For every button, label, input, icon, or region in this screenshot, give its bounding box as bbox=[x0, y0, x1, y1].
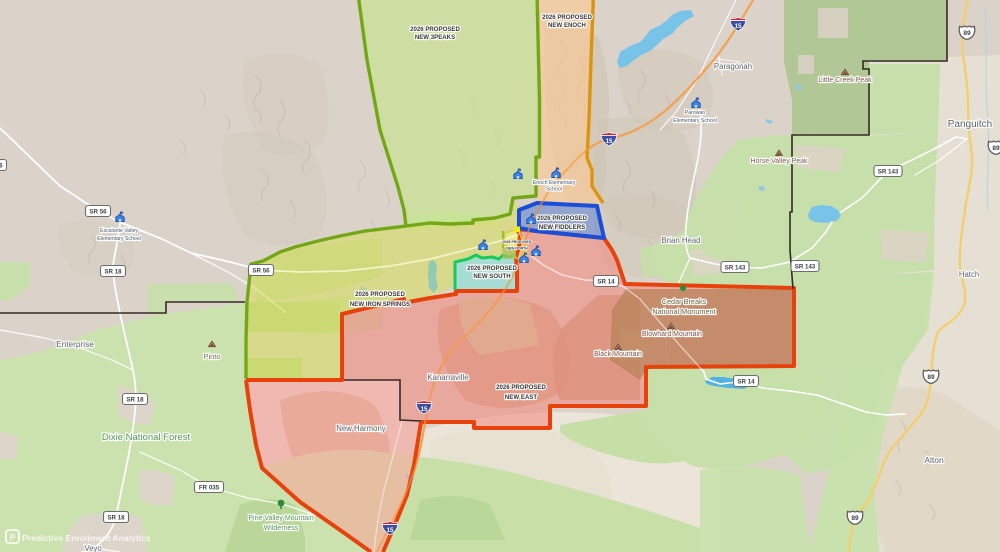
svg-text:Parowan: Parowan bbox=[685, 110, 706, 116]
svg-text:SR 56: SR 56 bbox=[89, 209, 107, 216]
svg-text:NEW FIDDLERS: NEW FIDDLERS bbox=[539, 224, 585, 231]
svg-text:Kanarraville: Kanarraville bbox=[427, 373, 468, 382]
svg-text:Alton: Alton bbox=[924, 455, 944, 465]
svg-text:Elementary School: Elementary School bbox=[97, 236, 141, 242]
svg-text:Dixie National Forest: Dixie National Forest bbox=[102, 432, 191, 443]
svg-text:NEW EAST: NEW EAST bbox=[505, 394, 537, 401]
svg-text:Veyo: Veyo bbox=[84, 544, 102, 552]
svg-text:Horse Valley Peak: Horse Valley Peak bbox=[750, 158, 808, 165]
svg-text:National Monument: National Monument bbox=[652, 307, 715, 316]
svg-text:Blowhard Mountain: Blowhard Mountain bbox=[642, 331, 702, 338]
svg-text:SR 143: SR 143 bbox=[725, 265, 746, 272]
svg-text:Escalante Valley: Escalante Valley bbox=[100, 228, 138, 234]
svg-text:NEW NORTH: NEW NORTH bbox=[506, 247, 528, 251]
svg-text:SR 14: SR 14 bbox=[737, 379, 755, 386]
svg-text:New Harmony: New Harmony bbox=[336, 424, 385, 433]
svg-text:2026 PROPOSED: 2026 PROPOSED bbox=[467, 265, 517, 272]
svg-text:Pinto: Pinto bbox=[203, 352, 220, 361]
svg-text:2026 PROPOSED: 2026 PROPOSED bbox=[503, 240, 532, 244]
svg-text:NEW IRON SPRINGS: NEW IRON SPRINGS bbox=[350, 301, 410, 308]
svg-text:NEW SOUTH: NEW SOUTH bbox=[473, 273, 510, 280]
svg-text:SR 56: SR 56 bbox=[252, 268, 270, 275]
svg-text:P: P bbox=[9, 533, 15, 543]
svg-text:NEW 3PEAKS: NEW 3PEAKS bbox=[415, 34, 455, 41]
svg-text:Little Creek Peak: Little Creek Peak bbox=[818, 77, 872, 84]
svg-text:Pine Valley Mountain: Pine Valley Mountain bbox=[248, 515, 313, 522]
svg-text:Black Mountain: Black Mountain bbox=[594, 351, 642, 358]
svg-text:Brian Head: Brian Head bbox=[661, 236, 700, 245]
svg-text:SR 18: SR 18 bbox=[107, 515, 125, 522]
svg-text:2026 PROPOSED: 2026 PROPOSED bbox=[410, 26, 460, 33]
svg-text:Cedar Breaks: Cedar Breaks bbox=[662, 297, 707, 306]
svg-text:School: School bbox=[546, 187, 562, 193]
svg-text:Elementary School: Elementary School bbox=[673, 118, 717, 124]
svg-text:SR 143: SR 143 bbox=[795, 264, 816, 271]
svg-text:2026 PROPOSED: 2026 PROPOSED bbox=[496, 384, 546, 391]
svg-text:2026 PROPOSED: 2026 PROPOSED bbox=[355, 291, 405, 298]
svg-text:Enterprise: Enterprise bbox=[56, 339, 94, 349]
svg-text:Paragonah: Paragonah bbox=[714, 62, 752, 71]
svg-text:SR 18: SR 18 bbox=[104, 269, 122, 276]
svg-text:FR 035: FR 035 bbox=[199, 485, 220, 492]
svg-text:SR 18: SR 18 bbox=[126, 397, 144, 404]
svg-text:Panguitch: Panguitch bbox=[948, 119, 992, 130]
svg-text:2026 PROPOSED: 2026 PROPOSED bbox=[537, 215, 587, 222]
svg-text:2026 PROPOSED: 2026 PROPOSED bbox=[542, 14, 592, 21]
svg-text:Hatch: Hatch bbox=[959, 270, 979, 279]
svg-text:SR 14: SR 14 bbox=[597, 279, 615, 286]
svg-text:SR 143: SR 143 bbox=[878, 169, 899, 176]
svg-text:Predictive Enrollment Analytic: Predictive Enrollment Analytics bbox=[22, 533, 151, 543]
svg-text:NEW ENOCH: NEW ENOCH bbox=[548, 22, 586, 29]
svg-text:Wilderness: Wilderness bbox=[264, 525, 299, 532]
svg-text:Enoch Elementary: Enoch Elementary bbox=[533, 180, 576, 186]
